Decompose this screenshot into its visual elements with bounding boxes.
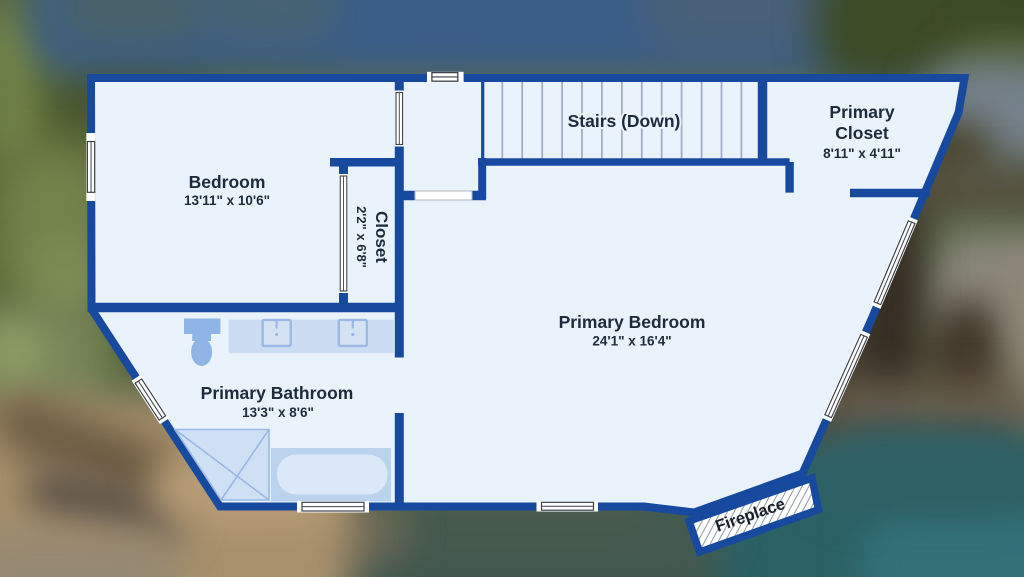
svg-text:8'11" x 4'11": 8'11" x 4'11": [823, 146, 901, 161]
svg-text:Primary: Primary: [829, 102, 894, 122]
svg-text:Stairs (Down): Stairs (Down): [568, 111, 681, 131]
svg-text:Closet: Closet: [835, 123, 889, 143]
svg-text:Closet: Closet: [372, 211, 391, 263]
svg-text:2'2" x 6'8": 2'2" x 6'8": [354, 206, 369, 268]
svg-text:13'3" x 8'6": 13'3" x 8'6": [242, 405, 314, 420]
svg-text:Bedroom: Bedroom: [189, 172, 266, 192]
svg-text:Primary Bathroom: Primary Bathroom: [201, 383, 354, 403]
svg-text:24'1" x 16'4": 24'1" x 16'4": [592, 334, 671, 349]
svg-text:13'11" x 10'6": 13'11" x 10'6": [184, 193, 270, 208]
svg-text:Primary Bedroom: Primary Bedroom: [559, 312, 706, 332]
